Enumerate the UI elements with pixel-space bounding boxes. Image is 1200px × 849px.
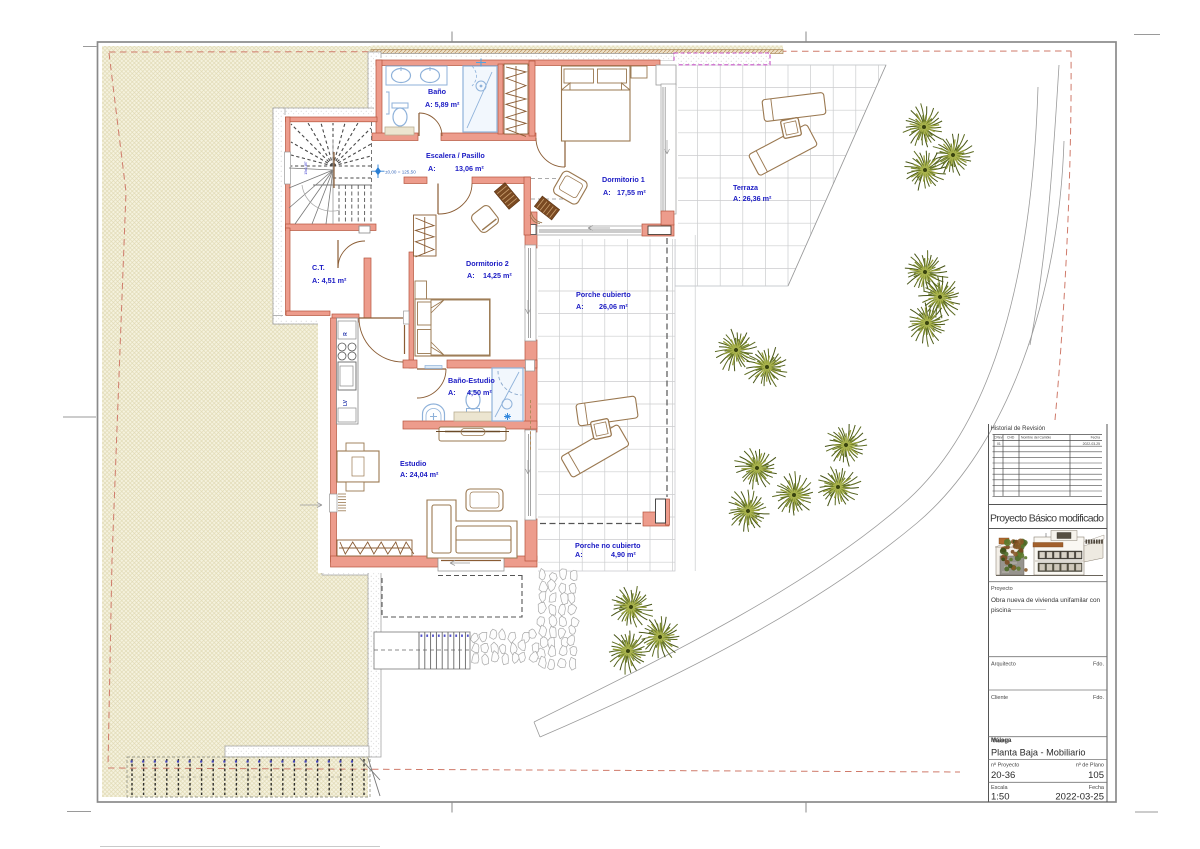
svg-text:17,55 m²: 17,55 m²	[617, 188, 646, 197]
svg-text:Arquitecto: Arquitecto	[991, 662, 1016, 668]
svg-text:13,06 m²: 13,06 m²	[455, 164, 484, 173]
svg-text:26,06 m²: 26,06 m²	[599, 302, 628, 311]
svg-text:01: 01	[997, 442, 1001, 446]
svg-text:Fecha: Fecha	[1091, 436, 1101, 440]
svg-text:nº Proyecto: nº Proyecto	[991, 762, 1019, 769]
svg-text:Estudio: Estudio	[400, 459, 427, 468]
svg-text:piscina: piscina	[991, 607, 1011, 614]
svg-text:15x0,187: 15x0,187	[304, 161, 308, 174]
svg-text:A: 26,36 m²: A: 26,36 m²	[733, 194, 772, 203]
svg-text:Madrid: Madrid	[993, 738, 1010, 744]
svg-text:Porche cubierto: Porche cubierto	[576, 290, 631, 299]
svg-text:Terraza: Terraza	[733, 183, 759, 192]
svg-text:LV: LV	[343, 399, 349, 406]
svg-text:Porche no cubierto: Porche no cubierto	[575, 541, 641, 550]
svg-text:4,90 m²: 4,90 m²	[611, 550, 636, 559]
svg-text:Escala: Escala	[991, 785, 1008, 791]
svg-text:A:: A:	[428, 164, 436, 173]
svg-text:1:50: 1:50	[991, 792, 1010, 803]
svg-text:Planta Baja - Mobiliario: Planta Baja - Mobiliario	[991, 748, 1085, 758]
svg-text:Escalera / Pasillo: Escalera / Pasillo	[426, 151, 485, 160]
svg-text:105: 105	[1088, 770, 1104, 781]
svg-text:±0,00 = 125,50: ±0,00 = 125,50	[385, 170, 416, 175]
svg-text:A:: A:	[576, 302, 584, 311]
svg-text:14,25 m²: 14,25 m²	[483, 271, 512, 280]
svg-text:4,50 m²: 4,50 m²	[467, 388, 492, 397]
svg-text:Dormitorio 2: Dormitorio 2	[466, 259, 509, 268]
svg-text:A:: A:	[575, 550, 583, 559]
svg-text:C.T.: C.T.	[312, 263, 325, 272]
svg-text:nº de Plano: nº de Plano	[1076, 762, 1104, 769]
svg-text:A:: A:	[603, 188, 611, 197]
svg-text:Dormitorio 1: Dormitorio 1	[602, 175, 645, 184]
svg-text:2022-03-25: 2022-03-25	[1055, 792, 1104, 803]
svg-text:A: 5,89 m²: A: 5,89 m²	[425, 100, 460, 109]
svg-text:Nombre del Cambio: Nombre del Cambio	[1021, 436, 1051, 440]
svg-text:CHD: CHD	[1007, 436, 1015, 440]
svg-text:Cliente: Cliente	[991, 695, 1008, 701]
svg-text:Fdo.: Fdo.	[1093, 662, 1104, 668]
svg-text:CRev: CRev	[994, 436, 1003, 440]
svg-text:Obra nueva de vivienda unifami: Obra nueva de vivienda unifamilar con	[991, 597, 1101, 604]
svg-text:R: R	[343, 332, 349, 336]
svg-text:A: 24,04 m²: A: 24,04 m²	[400, 470, 439, 479]
svg-text:A: 4,51 m²: A: 4,51 m²	[312, 276, 347, 285]
svg-text:20-36: 20-36	[991, 770, 1015, 781]
svg-text:Fecha: Fecha	[1089, 785, 1105, 791]
svg-text:Historial de Revisión: Historial de Revisión	[991, 426, 1046, 432]
svg-text:Proyecto: Proyecto	[991, 586, 1013, 592]
svg-text:Baño: Baño	[428, 87, 447, 96]
svg-text:Fdo.: Fdo.	[1093, 695, 1104, 701]
svg-text:2022-03-25: 2022-03-25	[1083, 442, 1100, 446]
svg-text:A:: A:	[448, 388, 456, 397]
svg-text:A:: A:	[467, 271, 475, 280]
svg-text:Baño-Estudio: Baño-Estudio	[448, 376, 495, 385]
svg-text:Proyecto Básico modificado: Proyecto Básico modificado	[990, 513, 1104, 525]
